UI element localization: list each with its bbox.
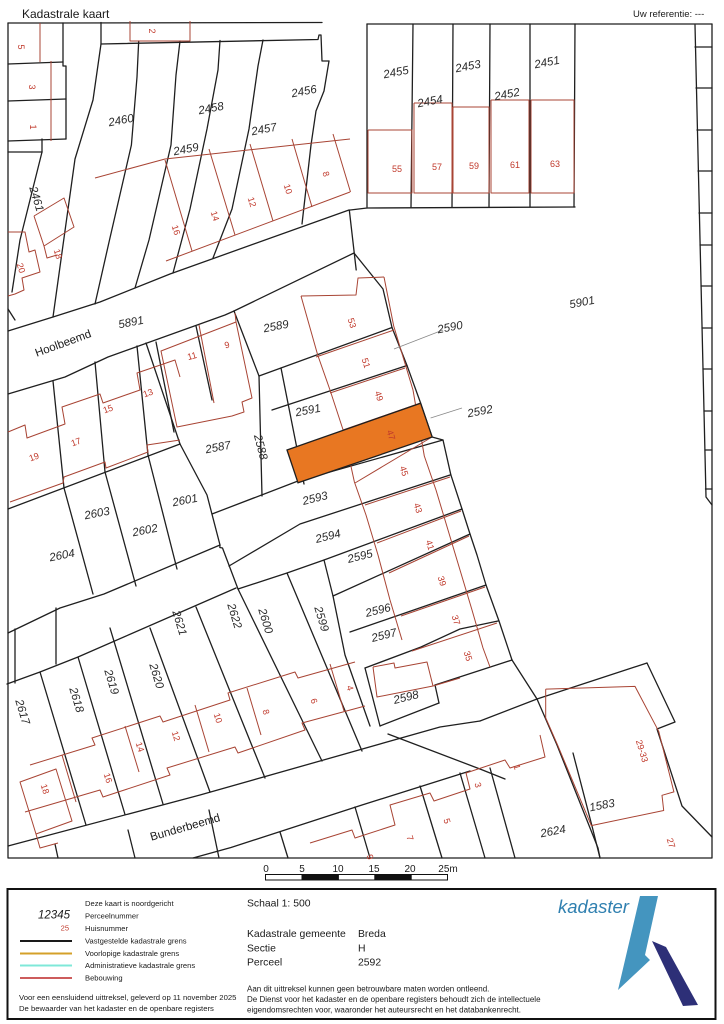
svg-text:1: 1 <box>28 124 38 129</box>
svg-text:De Dienst voor het kadaster en: De Dienst voor het kadaster en de openba… <box>247 995 541 1004</box>
svg-text:61: 61 <box>510 160 520 170</box>
svg-text:Kadastrale kaart: Kadastrale kaart <box>22 7 110 21</box>
svg-text:0: 0 <box>263 864 269 875</box>
svg-text:Perceel: Perceel <box>247 958 282 969</box>
svg-text:63: 63 <box>550 159 560 169</box>
svg-text:2: 2 <box>147 28 157 33</box>
svg-text:Kadastrale gemeente: Kadastrale gemeente <box>247 929 346 940</box>
svg-text:Uw referentie: ---: Uw referentie: --- <box>633 9 704 20</box>
svg-text:Bebouwing: Bebouwing <box>85 974 123 983</box>
svg-text:10: 10 <box>332 864 344 875</box>
svg-text:Sectie: Sectie <box>247 944 276 955</box>
svg-text:Vastgestelde kadastrale grens: Vastgestelde kadastrale grens <box>85 937 187 946</box>
svg-text:25m: 25m <box>438 864 457 875</box>
svg-text:Schaal 1: 500: Schaal 1: 500 <box>247 899 311 910</box>
svg-text:55: 55 <box>392 164 402 174</box>
svg-text:3: 3 <box>27 84 37 89</box>
svg-text:20: 20 <box>404 864 416 875</box>
svg-text:Perceelnummer: Perceelnummer <box>85 912 139 921</box>
svg-text:H: H <box>358 944 366 955</box>
svg-text:57: 57 <box>432 162 442 172</box>
svg-text:25: 25 <box>61 924 69 933</box>
svg-text:Administratieve kadastrale gre: Administratieve kadastrale grens <box>85 961 195 970</box>
svg-text:Deze kaart is noordgericht: Deze kaart is noordgericht <box>85 899 175 908</box>
svg-text:kadaster: kadaster <box>558 896 630 917</box>
svg-text:5: 5 <box>16 44 26 49</box>
svg-text:Huisnummer: Huisnummer <box>85 924 129 933</box>
svg-text:2592: 2592 <box>358 958 381 969</box>
svg-text:De bewaarder van het kadaster: De bewaarder van het kadaster en de open… <box>19 1004 214 1013</box>
svg-text:59: 59 <box>469 161 479 171</box>
svg-text:5: 5 <box>299 864 305 875</box>
svg-text:Aan dit uittreksel kunnen geen: Aan dit uittreksel kunnen geen betrouwba… <box>247 985 489 994</box>
svg-text:Voorlopige kadastrale grens: Voorlopige kadastrale grens <box>85 949 179 958</box>
svg-text:Breda: Breda <box>358 929 386 940</box>
svg-text:15: 15 <box>368 864 380 875</box>
svg-text:Voor een eensluidend uittrekse: Voor een eensluidend uittreksel, gelever… <box>19 993 236 1002</box>
svg-text:eigendomsrechten voor, waarond: eigendomsrechten voor, waaronder het aut… <box>247 1006 521 1015</box>
svg-text:12345: 12345 <box>38 910 71 922</box>
